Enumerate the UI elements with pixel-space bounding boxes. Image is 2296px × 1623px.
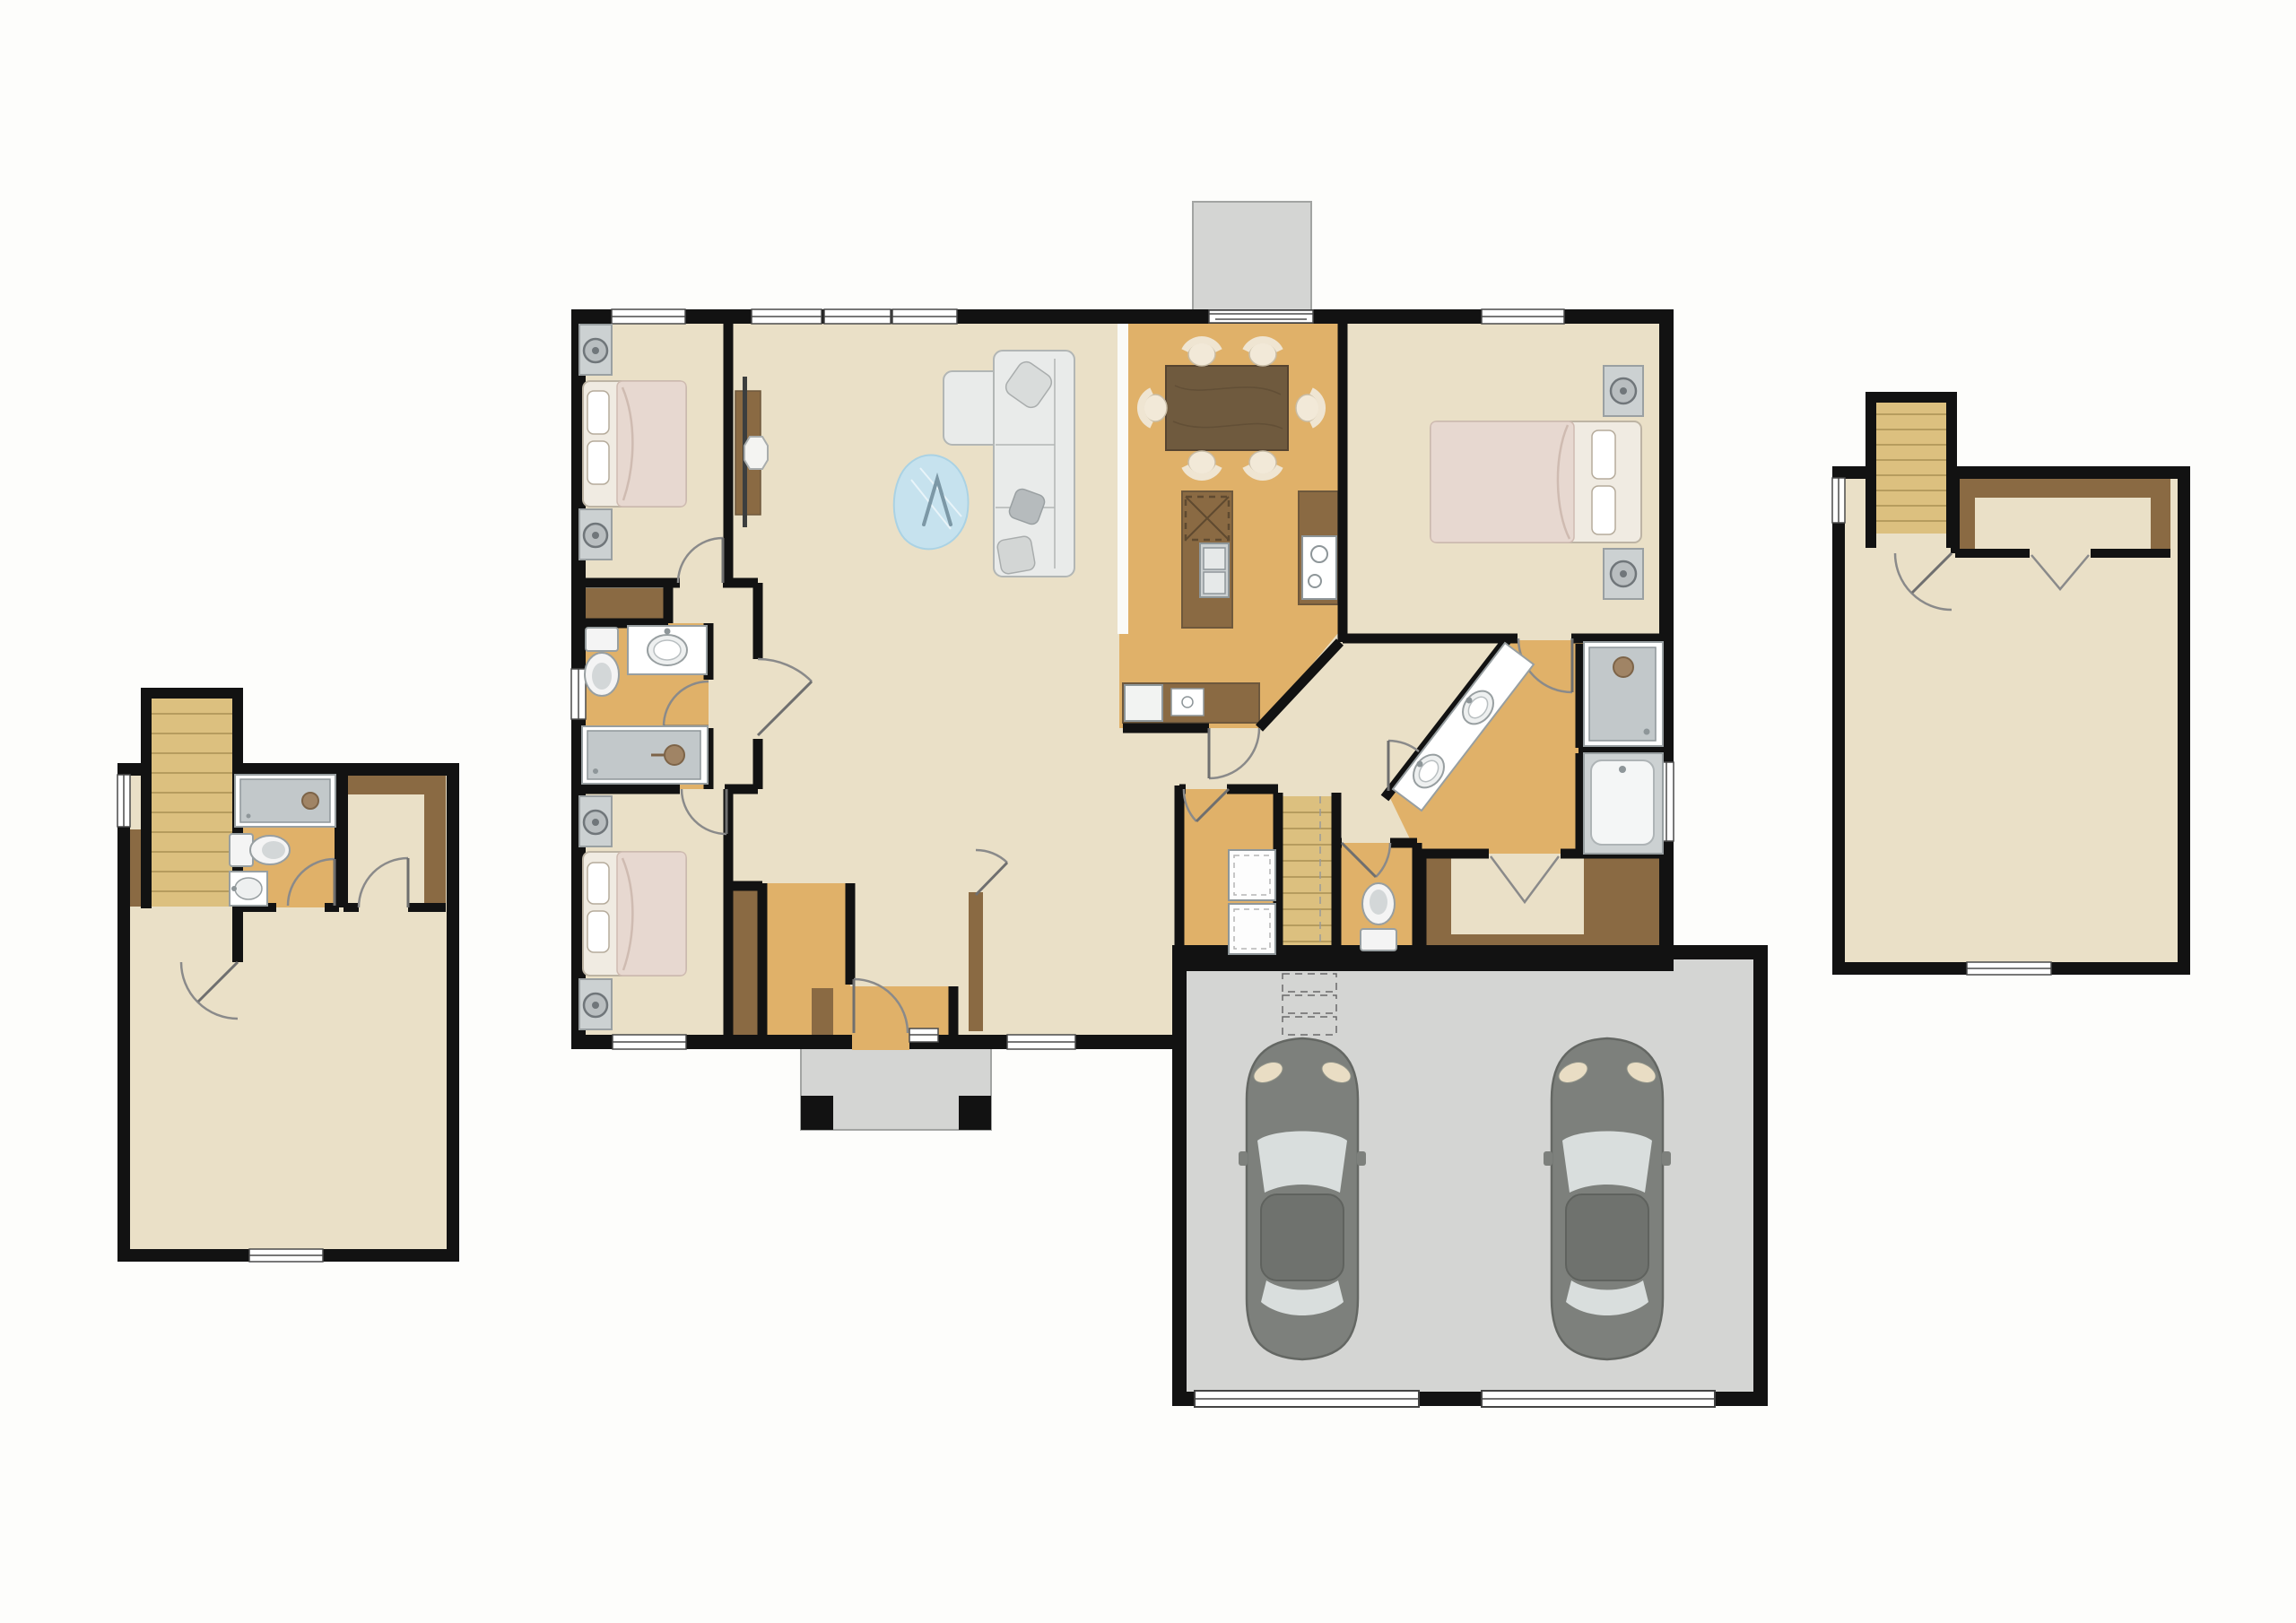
living-dining-divider — [1118, 324, 1128, 634]
tub-faucet — [1619, 766, 1626, 773]
tub — [1591, 760, 1654, 845]
master-faucet-2 — [1466, 698, 1473, 704]
master-bed-pillow — [1592, 486, 1615, 534]
coat-closet — [812, 988, 833, 1035]
basement-faucet — [231, 886, 237, 891]
rear-deck — [1193, 202, 1311, 321]
dryer — [1229, 904, 1275, 954]
speaker-dot — [1620, 387, 1627, 395]
patio-slider — [1209, 310, 1313, 323]
toilet-bowl-inner — [592, 663, 612, 690]
car-mirror — [1544, 1151, 1552, 1166]
bed-pillow — [587, 911, 609, 952]
car-mirror — [1357, 1151, 1366, 1166]
car-mirror — [1239, 1151, 1248, 1166]
car-windshield — [1562, 1132, 1652, 1193]
wc-toilet-inner — [1370, 890, 1387, 915]
shower-head — [665, 745, 684, 765]
porch-column-right — [959, 1096, 991, 1130]
car-mirror — [1662, 1151, 1671, 1166]
vanity-faucet — [665, 629, 671, 635]
refrigerator — [1125, 685, 1162, 721]
vanity-sink-inner — [654, 640, 681, 660]
car-roof — [1566, 1194, 1648, 1280]
console-mirror — [744, 437, 768, 469]
bonus-closet-floor — [1975, 498, 2151, 553]
bed-pillow — [587, 863, 609, 904]
hall-pantry — [969, 892, 983, 1031]
linen-closet — [581, 588, 665, 622]
basement-sink — [235, 878, 262, 899]
basement-shower-head — [302, 793, 318, 809]
washer — [1229, 850, 1275, 900]
bonus-stairs — [1876, 403, 1950, 534]
dishwasher-drawer-top — [1204, 548, 1225, 569]
car-windshield — [1257, 1132, 1347, 1193]
basement-toilet-inner — [262, 841, 285, 859]
entry-door-opening — [852, 1034, 909, 1050]
speaker-dot — [592, 347, 599, 354]
toilet-tank — [586, 628, 618, 651]
master-shower-head — [1613, 657, 1633, 677]
basement-stairs — [151, 699, 233, 907]
bedroom3-closet — [732, 890, 759, 1037]
floor-plan-page — [0, 0, 2296, 1623]
dishwasher-drawer-bottom — [1204, 572, 1225, 594]
speaker-dot — [592, 532, 599, 539]
shower-drain — [593, 768, 598, 774]
master-bed-blanket — [1431, 421, 1574, 542]
speaker-dot — [1620, 570, 1627, 577]
basement-closet-floor — [344, 794, 424, 907]
wc-toilet-tank — [1361, 929, 1396, 950]
dining-table — [1166, 366, 1288, 450]
basement-shower-drain — [247, 814, 251, 819]
master-faucet-1 — [1417, 761, 1423, 768]
master-shower-drain — [1644, 729, 1650, 735]
kitchen-sink — [1171, 689, 1204, 716]
master-bed-pillow — [1592, 430, 1615, 479]
bed-pillow — [587, 391, 609, 434]
bed-pillow — [587, 441, 609, 484]
car-roof — [1261, 1194, 1344, 1280]
porch-column-left — [801, 1096, 833, 1130]
sofa-pillow-bottom — [996, 535, 1036, 575]
speaker-dot — [592, 819, 599, 826]
speaker-dot — [592, 1002, 599, 1009]
floor-plan-canvas — [0, 0, 2296, 1623]
